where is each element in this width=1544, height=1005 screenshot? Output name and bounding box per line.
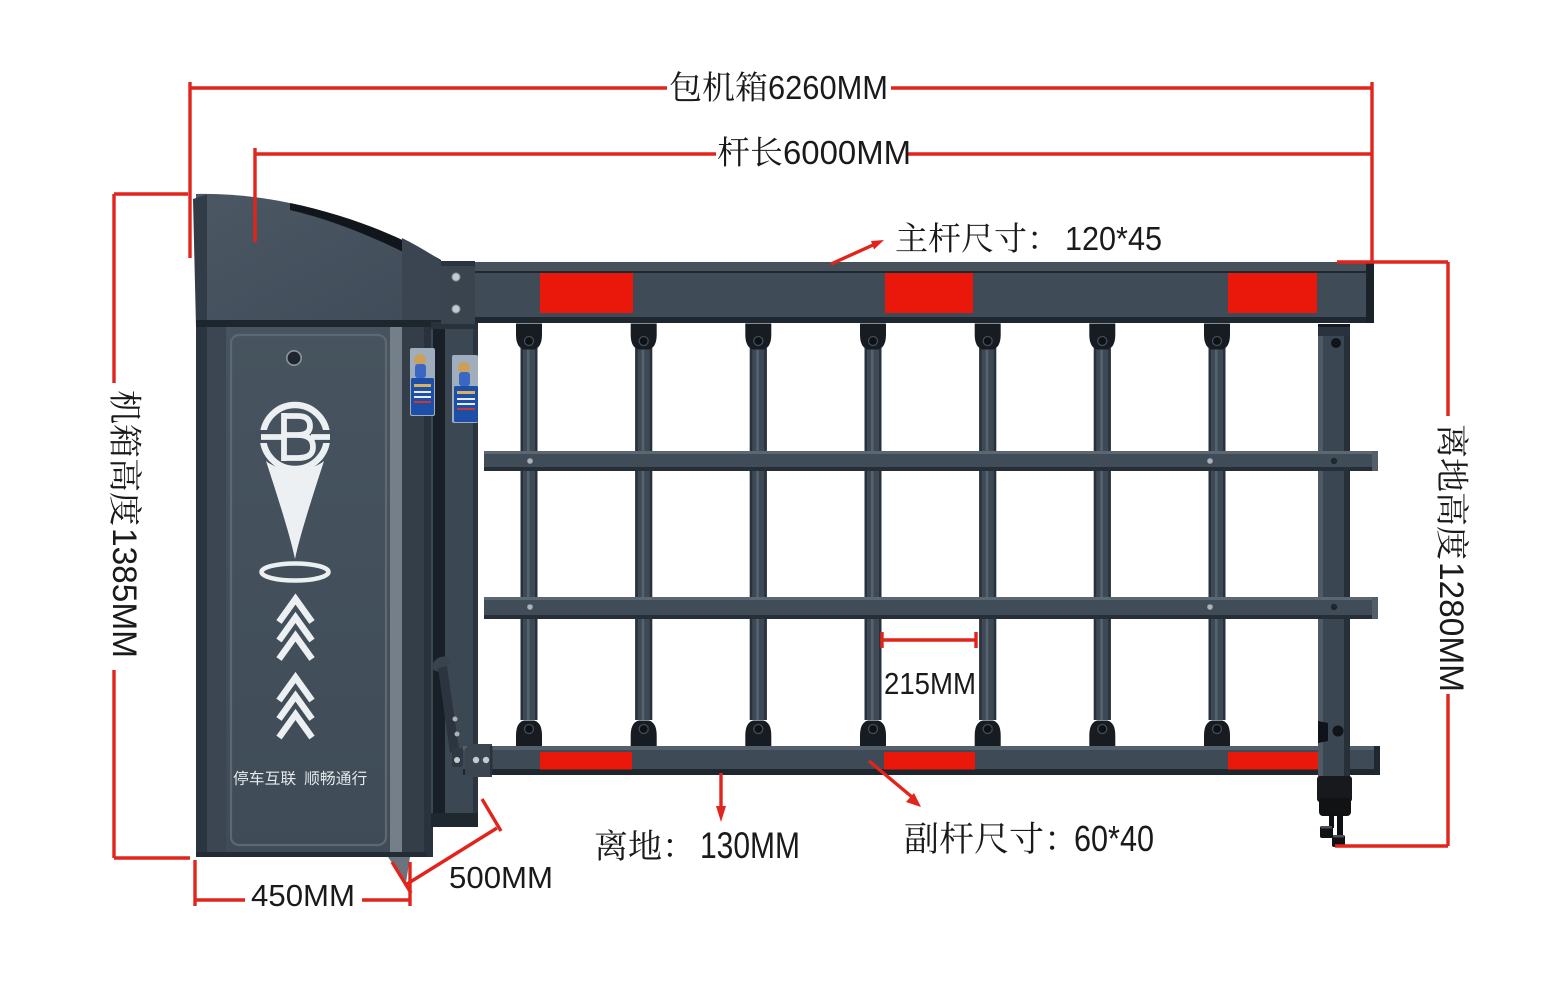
- svg-text:130MM: 130MM: [700, 825, 800, 866]
- svg-text:215MM: 215MM: [884, 666, 976, 701]
- svg-text:120*45: 120*45: [1065, 220, 1162, 257]
- svg-text:1385MM: 1385MM: [105, 528, 143, 658]
- svg-text:6260MM: 6260MM: [768, 69, 888, 106]
- svg-text:500MM: 500MM: [449, 860, 553, 895]
- svg-text:60*40: 60*40: [1074, 818, 1154, 859]
- svg-text:450MM: 450MM: [251, 878, 355, 913]
- svg-text:1280MM: 1280MM: [1432, 562, 1470, 692]
- svg-text:6000MM: 6000MM: [783, 134, 911, 171]
